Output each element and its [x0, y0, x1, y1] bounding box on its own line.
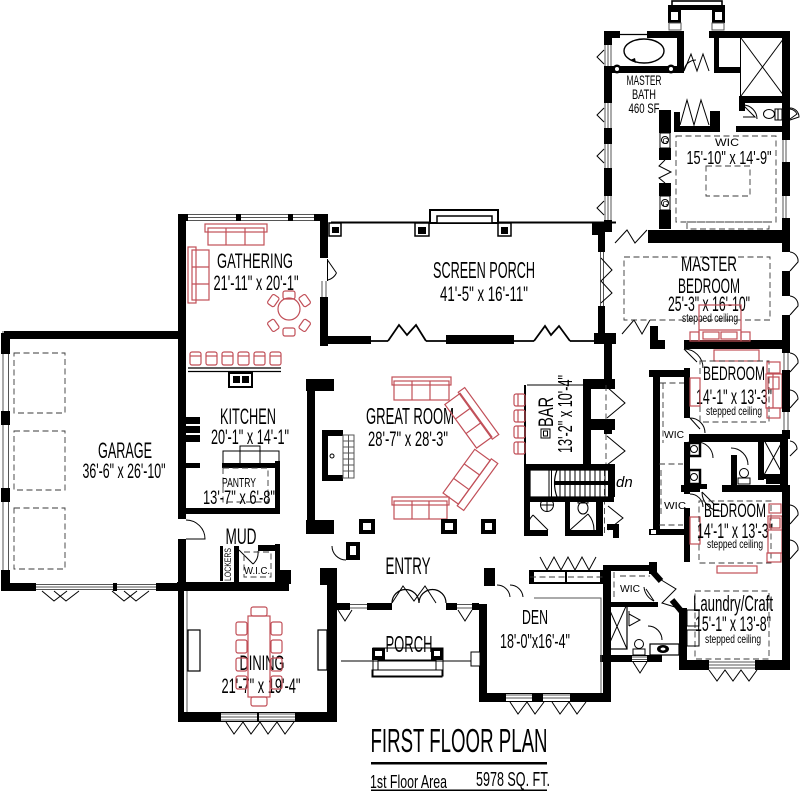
svg-text:stepped ceiling: stepped ceiling	[707, 537, 763, 551]
svg-text:MASTER: MASTER	[627, 73, 662, 88]
svg-text:BATH: BATH	[632, 87, 656, 102]
svg-text:41'-5" x 16'-11": 41'-5" x 16'-11"	[440, 283, 528, 306]
svg-text:G: G	[663, 200, 669, 209]
svg-text:28'-7" x 28'-3": 28'-7" x 28'-3"	[368, 428, 448, 451]
svg-text:W.I.C.: W.I.C.	[244, 566, 270, 577]
svg-text:G: G	[663, 137, 669, 146]
svg-text:36'-6" x 26'-10": 36'-6" x 26'-10"	[83, 460, 166, 483]
svg-text:21'-7" x 19'-4": 21'-7" x 19'-4"	[222, 675, 301, 698]
svg-text:1st Floor Area: 1st Floor Area	[370, 772, 448, 791]
svg-text:13'-7" x 6'-8": 13'-7" x 6'-8"	[203, 488, 275, 509]
svg-text:ENTRY: ENTRY	[386, 553, 431, 580]
svg-text:13'-2" x 10'-4": 13'-2" x 10'-4"	[555, 375, 577, 453]
svg-text:SCREEN PORCH: SCREEN PORCH	[433, 257, 535, 283]
svg-text:15'-10" x 14'-9": 15'-10" x 14'-9"	[687, 148, 772, 168]
svg-text:BEDROOM: BEDROOM	[703, 363, 765, 385]
svg-text:LOCKERS: LOCKERS	[223, 548, 233, 581]
svg-text:5978 SQ. FT.: 5978 SQ. FT.	[476, 769, 550, 791]
svg-text:PORCH: PORCH	[386, 631, 433, 657]
svg-text:MASTER: MASTER	[681, 252, 737, 276]
svg-text:FIRST FLOOR PLAN: FIRST FLOOR PLAN	[371, 722, 548, 759]
svg-text:stepped ceiling: stepped ceiling	[682, 311, 738, 325]
svg-text:GATHERING: GATHERING	[217, 249, 293, 273]
svg-text:DEN: DEN	[522, 607, 548, 629]
svg-text:WIC: WIC	[620, 583, 640, 595]
svg-text:stepped ceiling: stepped ceiling	[706, 404, 762, 418]
svg-text:BEDROOM: BEDROOM	[704, 500, 766, 522]
svg-text:MUD: MUD	[226, 524, 257, 549]
svg-text:stepped ceiling: stepped ceiling	[705, 632, 761, 646]
svg-text:WIC: WIC	[664, 500, 686, 512]
svg-text:GREAT ROOM: GREAT ROOM	[366, 403, 454, 429]
svg-text:460 SF: 460 SF	[629, 101, 660, 116]
svg-text:WIC: WIC	[664, 429, 684, 441]
svg-text:18'-0"x16'-4": 18'-0"x16'-4"	[500, 631, 570, 653]
svg-text:dn: dn	[616, 474, 633, 491]
